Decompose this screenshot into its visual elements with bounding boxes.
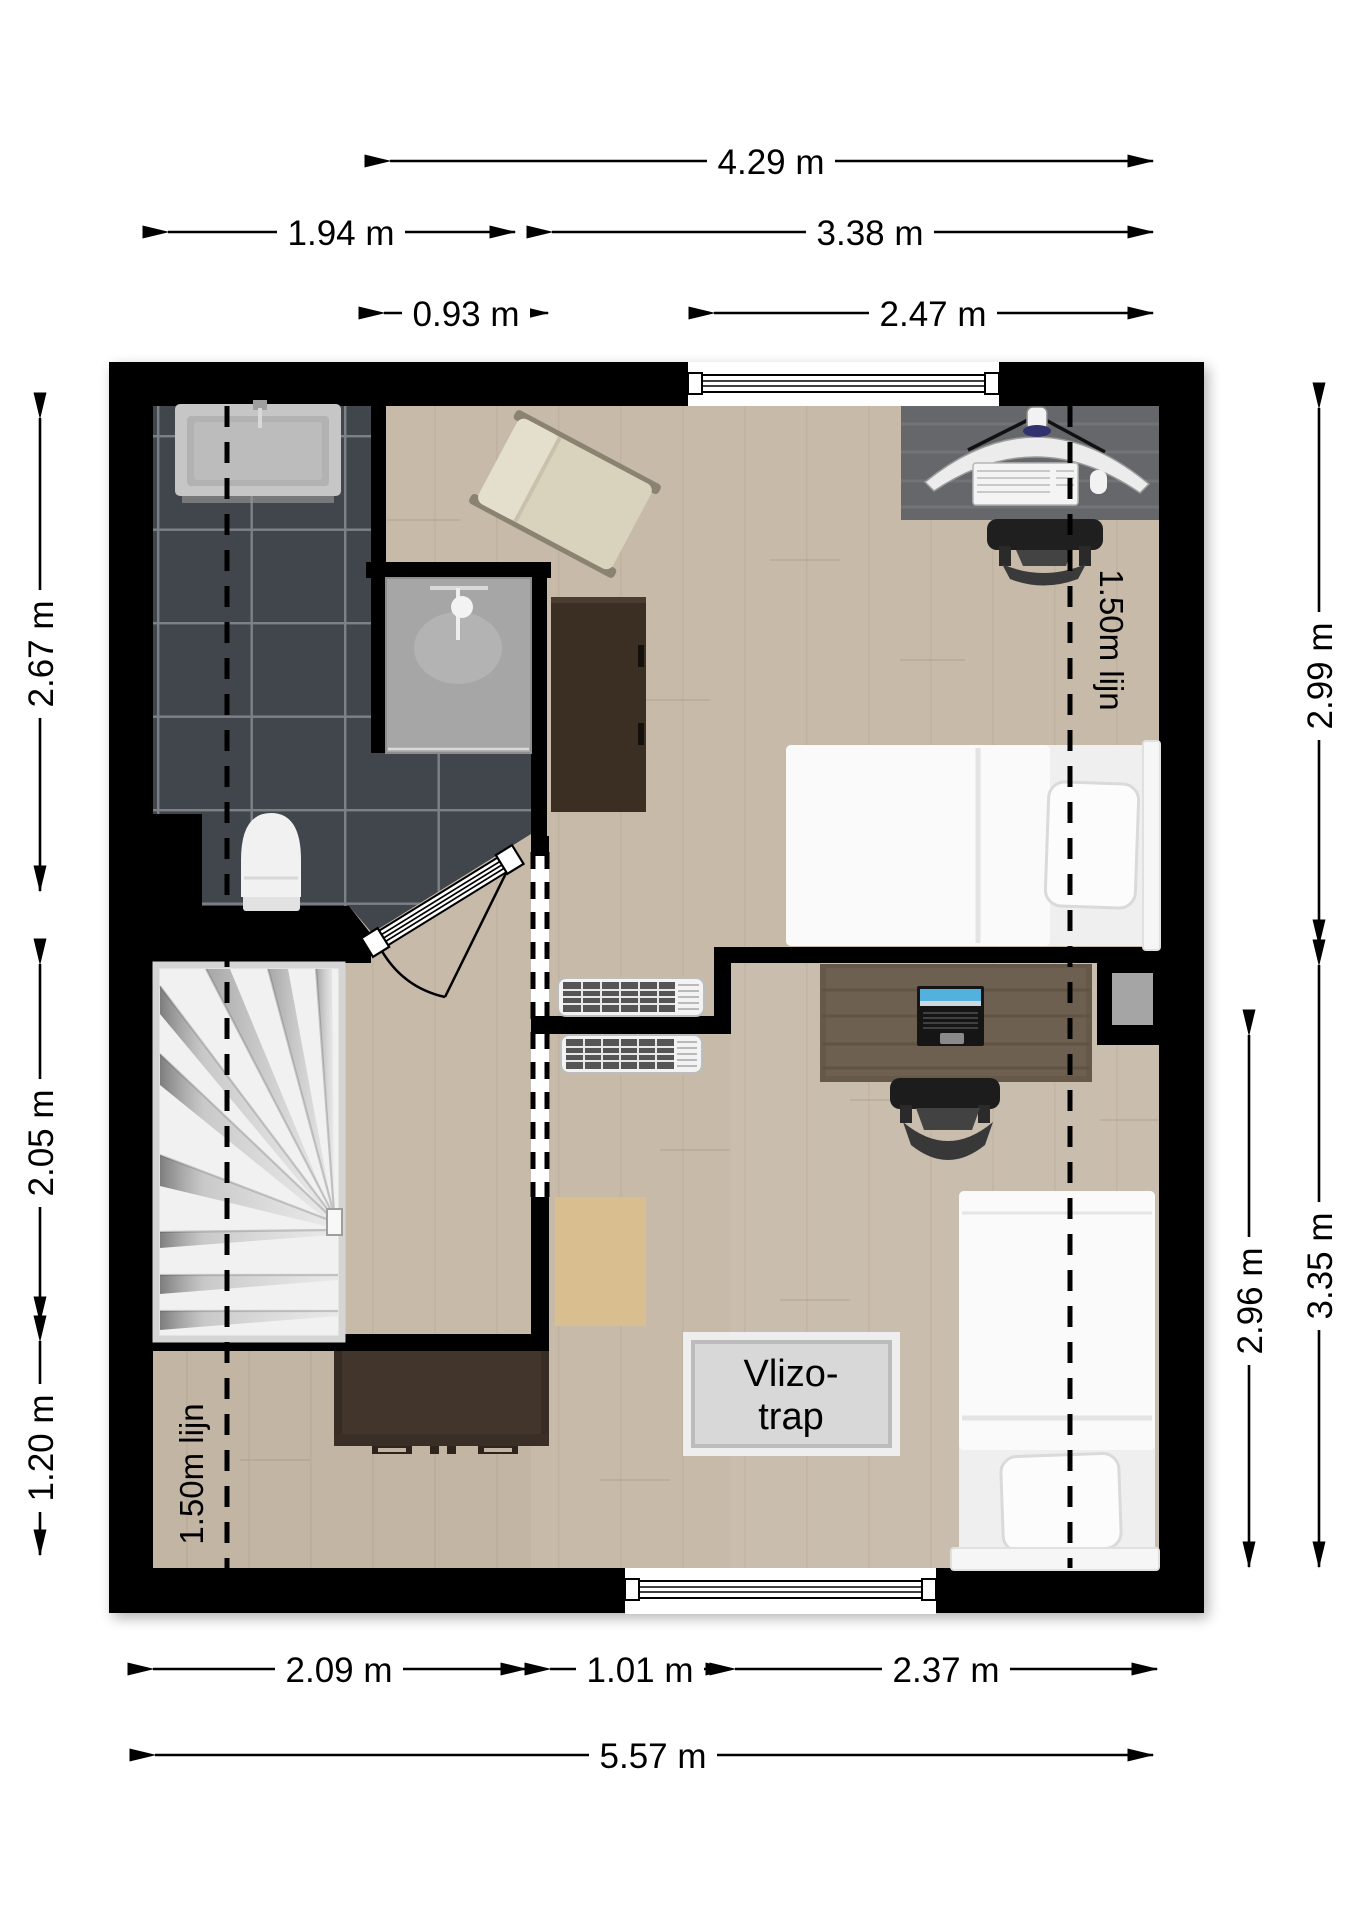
svg-text:0.93 m: 0.93 m [413,295,520,334]
svg-text:1.50m lijn: 1.50m lijn [173,1403,210,1544]
svg-text:1.20 m: 1.20 m [22,1395,61,1502]
svg-text:2.37 m: 2.37 m [893,1651,1000,1690]
svg-text:2.96 m: 2.96 m [1231,1248,1270,1355]
svg-text:1.01 m: 1.01 m [587,1651,694,1690]
svg-text:4.29 m: 4.29 m [718,143,825,182]
svg-text:5.57 m: 5.57 m [600,1737,707,1776]
svg-text:2.99 m: 2.99 m [1301,623,1340,730]
svg-text:2.09 m: 2.09 m [286,1651,393,1690]
svg-text:3.38 m: 3.38 m [817,214,924,253]
svg-text:1.94 m: 1.94 m [288,214,395,253]
svg-text:trap: trap [758,1396,823,1438]
svg-text:1.50m lijn: 1.50m lijn [1093,569,1130,710]
svg-text:3.35 m: 3.35 m [1301,1213,1340,1320]
svg-text:2.05 m: 2.05 m [22,1090,61,1197]
svg-text:2.67 m: 2.67 m [22,601,61,708]
svg-text:2.47 m: 2.47 m [880,295,987,334]
svg-text:Vlizo-: Vlizo- [743,1353,838,1395]
